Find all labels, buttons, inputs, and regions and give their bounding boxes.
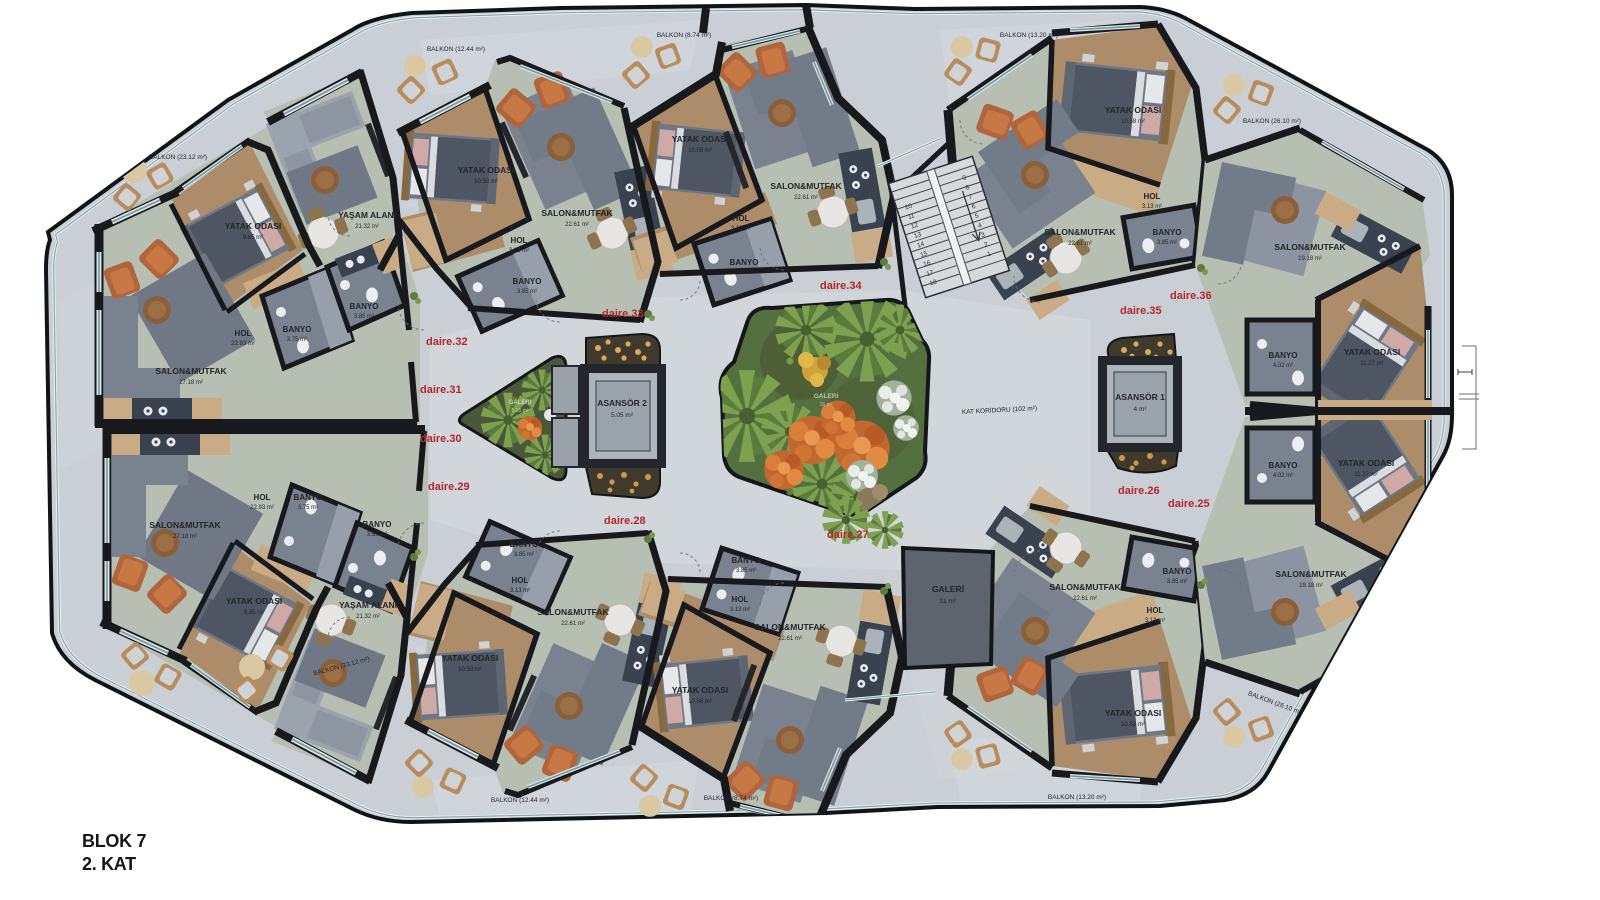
svg-text:BLOK 7: BLOK 7 (82, 831, 146, 851)
svg-text:BANYO: BANYO (1163, 567, 1192, 576)
svg-text:HOL: HOL (732, 595, 749, 604)
svg-text:HOL: HOL (254, 493, 271, 502)
svg-text:3.85 m²: 3.85 m² (734, 270, 754, 276)
svg-text:9.85 m²: 9.85 m² (244, 610, 264, 616)
svg-text:3.85 m²: 3.85 m² (736, 568, 756, 574)
svg-text:daire.35: daire.35 (1120, 305, 1162, 317)
svg-text:5.16 m²: 5.16 m² (512, 408, 529, 414)
svg-text:3.75 m²: 3.75 m² (287, 337, 307, 343)
svg-text:22.61 m²: 22.61 m² (561, 621, 585, 627)
svg-text:daire.34: daire.34 (820, 280, 862, 292)
svg-text:3.13 m²: 3.13 m² (510, 588, 530, 594)
svg-text:SALON&MUTFAK: SALON&MUTFAK (1044, 227, 1116, 237)
svg-text:4.02 m²: 4.02 m² (1273, 363, 1293, 369)
svg-text:3.75 m²: 3.75 m² (298, 505, 318, 511)
svg-text:10.58 m²: 10.58 m² (688, 148, 712, 154)
svg-text:BANYO: BANYO (1269, 351, 1298, 360)
svg-text:2. KAT: 2. KAT (82, 854, 136, 874)
svg-text:BALKON (13.20 m²): BALKON (13.20 m²) (1048, 794, 1106, 801)
svg-text:daire.26: daire.26 (1118, 485, 1160, 497)
svg-text:BANYO: BANYO (1269, 461, 1298, 470)
svg-text:GALERİ: GALERİ (814, 392, 839, 400)
svg-text:3.13 m²: 3.13 m² (1145, 618, 1165, 624)
svg-text:3.85 m²: 3.85 m² (1157, 240, 1177, 246)
svg-text:22.61 m²: 22.61 m² (565, 222, 589, 228)
svg-text:BANYO: BANYO (350, 302, 379, 311)
svg-text:22.61 m²: 22.61 m² (778, 636, 802, 642)
svg-text:BANYO: BANYO (732, 556, 761, 565)
svg-text:GALERİ: GALERİ (509, 399, 532, 406)
svg-text:daire.28: daire.28 (604, 515, 646, 527)
svg-text:SALON&MUTFAK: SALON&MUTFAK (541, 208, 613, 218)
svg-text:BALKON (13.20 m²): BALKON (13.20 m²) (1000, 32, 1058, 39)
svg-text:27.18 m²: 27.18 m² (179, 380, 203, 386)
svg-text:22.61 m²: 22.61 m² (794, 195, 818, 201)
svg-text:YAŞAM ALANI: YAŞAM ALANI (338, 210, 396, 220)
svg-text:YATAK ODASI: YATAK ODASI (672, 685, 729, 695)
svg-text:5.05 m²: 5.05 m² (611, 412, 634, 419)
svg-text:SALON&MUTFAK: SALON&MUTFAK (754, 622, 826, 632)
svg-text:HOL: HOL (1147, 606, 1164, 615)
svg-text:daire.30: daire.30 (420, 433, 462, 445)
svg-text:4.02 m²: 4.02 m² (1273, 473, 1293, 479)
svg-text:YAŞAM ALANI: YAŞAM ALANI (339, 600, 397, 610)
svg-text:daire.25: daire.25 (1168, 498, 1210, 510)
svg-text:22.61 m²: 22.61 m² (1068, 241, 1092, 247)
svg-text:21.32 m²: 21.32 m² (356, 614, 380, 620)
svg-text:22.61 m²: 22.61 m² (1073, 596, 1097, 602)
svg-text:BANYO: BANYO (363, 520, 392, 529)
svg-text:BANYO: BANYO (513, 277, 542, 286)
svg-text:16 m²: 16 m² (820, 402, 833, 408)
svg-text:ASANSÖR 2: ASANSÖR 2 (597, 398, 647, 408)
svg-text:YATAK ODASI: YATAK ODASI (1344, 347, 1401, 357)
svg-text:22.93 m²: 22.93 m² (231, 341, 255, 347)
svg-text:GALERİ: GALERİ (932, 584, 964, 594)
svg-text:BANYO: BANYO (730, 258, 759, 267)
svg-text:3.13 m²: 3.13 m² (731, 226, 751, 232)
svg-text:HOL: HOL (512, 576, 529, 585)
svg-text:YATAK ODASI: YATAK ODASI (225, 221, 282, 231)
svg-text:SALON&MUTFAK: SALON&MUTFAK (537, 607, 609, 617)
svg-text:BALKON (12.44 m²): BALKON (12.44 m²) (491, 797, 549, 804)
svg-text:SALON&MUTFAK: SALON&MUTFAK (770, 181, 842, 191)
svg-text:YATAK ODASI: YATAK ODASI (1105, 105, 1162, 115)
svg-text:BANYO: BANYO (510, 540, 539, 549)
svg-text:10.58 m²: 10.58 m² (458, 667, 482, 673)
svg-text:BANYO: BANYO (1153, 228, 1182, 237)
svg-text:19.18 m²: 19.18 m² (1299, 583, 1323, 589)
svg-text:10.58 m²: 10.58 m² (474, 179, 498, 185)
svg-text:BANYO: BANYO (283, 325, 312, 334)
svg-text:BALKON (26.10 m²): BALKON (26.10 m²) (1243, 118, 1301, 125)
svg-text:BALKON (23.12 m²): BALKON (23.12 m²) (149, 154, 207, 161)
svg-text:HOL: HOL (511, 236, 528, 245)
svg-text:11 m²: 11 m² (940, 598, 957, 605)
svg-text:daire.27: daire.27 (827, 529, 869, 541)
svg-text:11.27 m²: 11.27 m² (1360, 361, 1383, 367)
svg-text:27.18 m²: 27.18 m² (173, 534, 197, 540)
svg-text:YATAK ODASI: YATAK ODASI (1105, 708, 1162, 718)
svg-text:BANYO: BANYO (294, 493, 323, 502)
svg-text:YATAK ODASI: YATAK ODASI (458, 165, 515, 175)
svg-text:SALON&MUTFAK: SALON&MUTFAK (1275, 569, 1347, 579)
svg-text:YATAK ODASI: YATAK ODASI (672, 134, 729, 144)
svg-text:3.85 m²: 3.85 m² (517, 289, 537, 295)
svg-text:3.13 m²: 3.13 m² (730, 607, 750, 613)
svg-text:HOL: HOL (1144, 192, 1161, 201)
svg-text:BALKON (8.74 m²): BALKON (8.74 m²) (657, 32, 712, 39)
svg-text:BALKON (8.74 m²): BALKON (8.74 m²) (704, 795, 759, 802)
svg-text:HOL: HOL (235, 329, 252, 338)
svg-text:YATAK ODASI: YATAK ODASI (442, 653, 499, 663)
svg-text:19.18 m²: 19.18 m² (1298, 256, 1322, 262)
svg-text:HOL: HOL (733, 214, 750, 223)
svg-text:9.85 m²: 9.85 m² (243, 235, 263, 241)
svg-text:SALON&MUTFAK: SALON&MUTFAK (1274, 242, 1346, 252)
svg-text:3.85 m²: 3.85 m² (367, 532, 387, 538)
svg-text:3.13 m²: 3.13 m² (1142, 204, 1162, 210)
svg-text:3.85 m²: 3.85 m² (1167, 579, 1187, 585)
svg-text:daire.31: daire.31 (420, 384, 462, 396)
svg-text:daire.33: daire.33 (602, 308, 644, 320)
svg-text:BALKON (12.44 m²): BALKON (12.44 m²) (427, 46, 485, 53)
svg-text:daire.29: daire.29 (428, 481, 470, 493)
svg-text:3.85 m²: 3.85 m² (354, 314, 374, 320)
svg-text:22.93 m²: 22.93 m² (250, 505, 274, 511)
svg-text:SALON&MUTFAK: SALON&MUTFAK (149, 520, 221, 530)
svg-text:SALON&MUTFAK: SALON&MUTFAK (155, 366, 227, 376)
svg-text:4 m²: 4 m² (1134, 406, 1148, 413)
svg-text:3.13 m²: 3.13 m² (509, 248, 529, 254)
svg-text:11.27 m²: 11.27 m² (1354, 472, 1377, 478)
svg-text:10.58 m²: 10.58 m² (1121, 119, 1145, 125)
svg-text:10.58 m²: 10.58 m² (688, 699, 712, 705)
svg-text:SALON&MUTFAK: SALON&MUTFAK (1049, 582, 1121, 592)
svg-text:21.32 m²: 21.32 m² (355, 224, 379, 230)
svg-text:daire.36: daire.36 (1170, 290, 1212, 302)
svg-text:YATAK ODASI: YATAK ODASI (1338, 458, 1395, 468)
svg-text:YATAK ODASI: YATAK ODASI (226, 596, 283, 606)
svg-text:10.58 m²: 10.58 m² (1121, 722, 1145, 728)
svg-text:ASANSÖR 1: ASANSÖR 1 (1115, 392, 1165, 402)
svg-text:3.85 m²: 3.85 m² (514, 552, 534, 558)
svg-text:daire.32: daire.32 (426, 336, 468, 348)
